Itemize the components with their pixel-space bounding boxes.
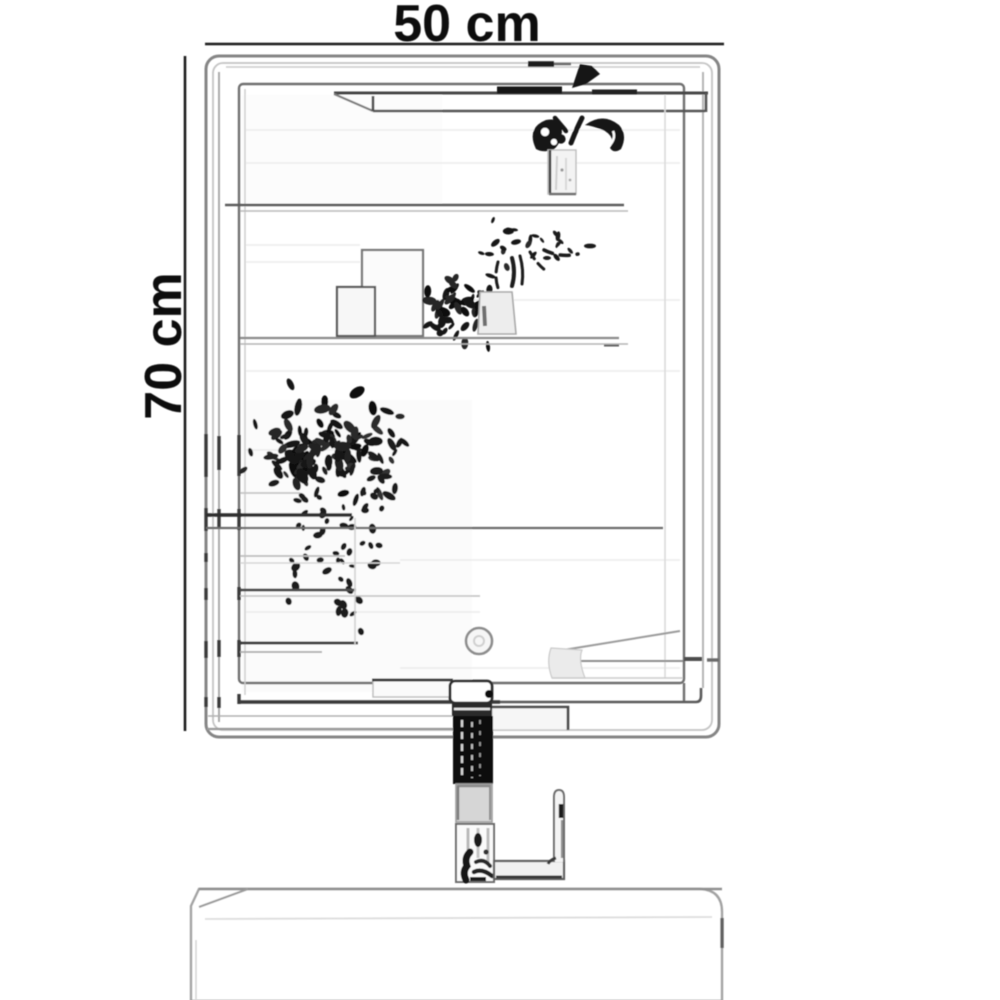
svg-text:50 cm: 50 cm — [393, 0, 540, 53]
svg-text:70 cm: 70 cm — [135, 272, 193, 419]
